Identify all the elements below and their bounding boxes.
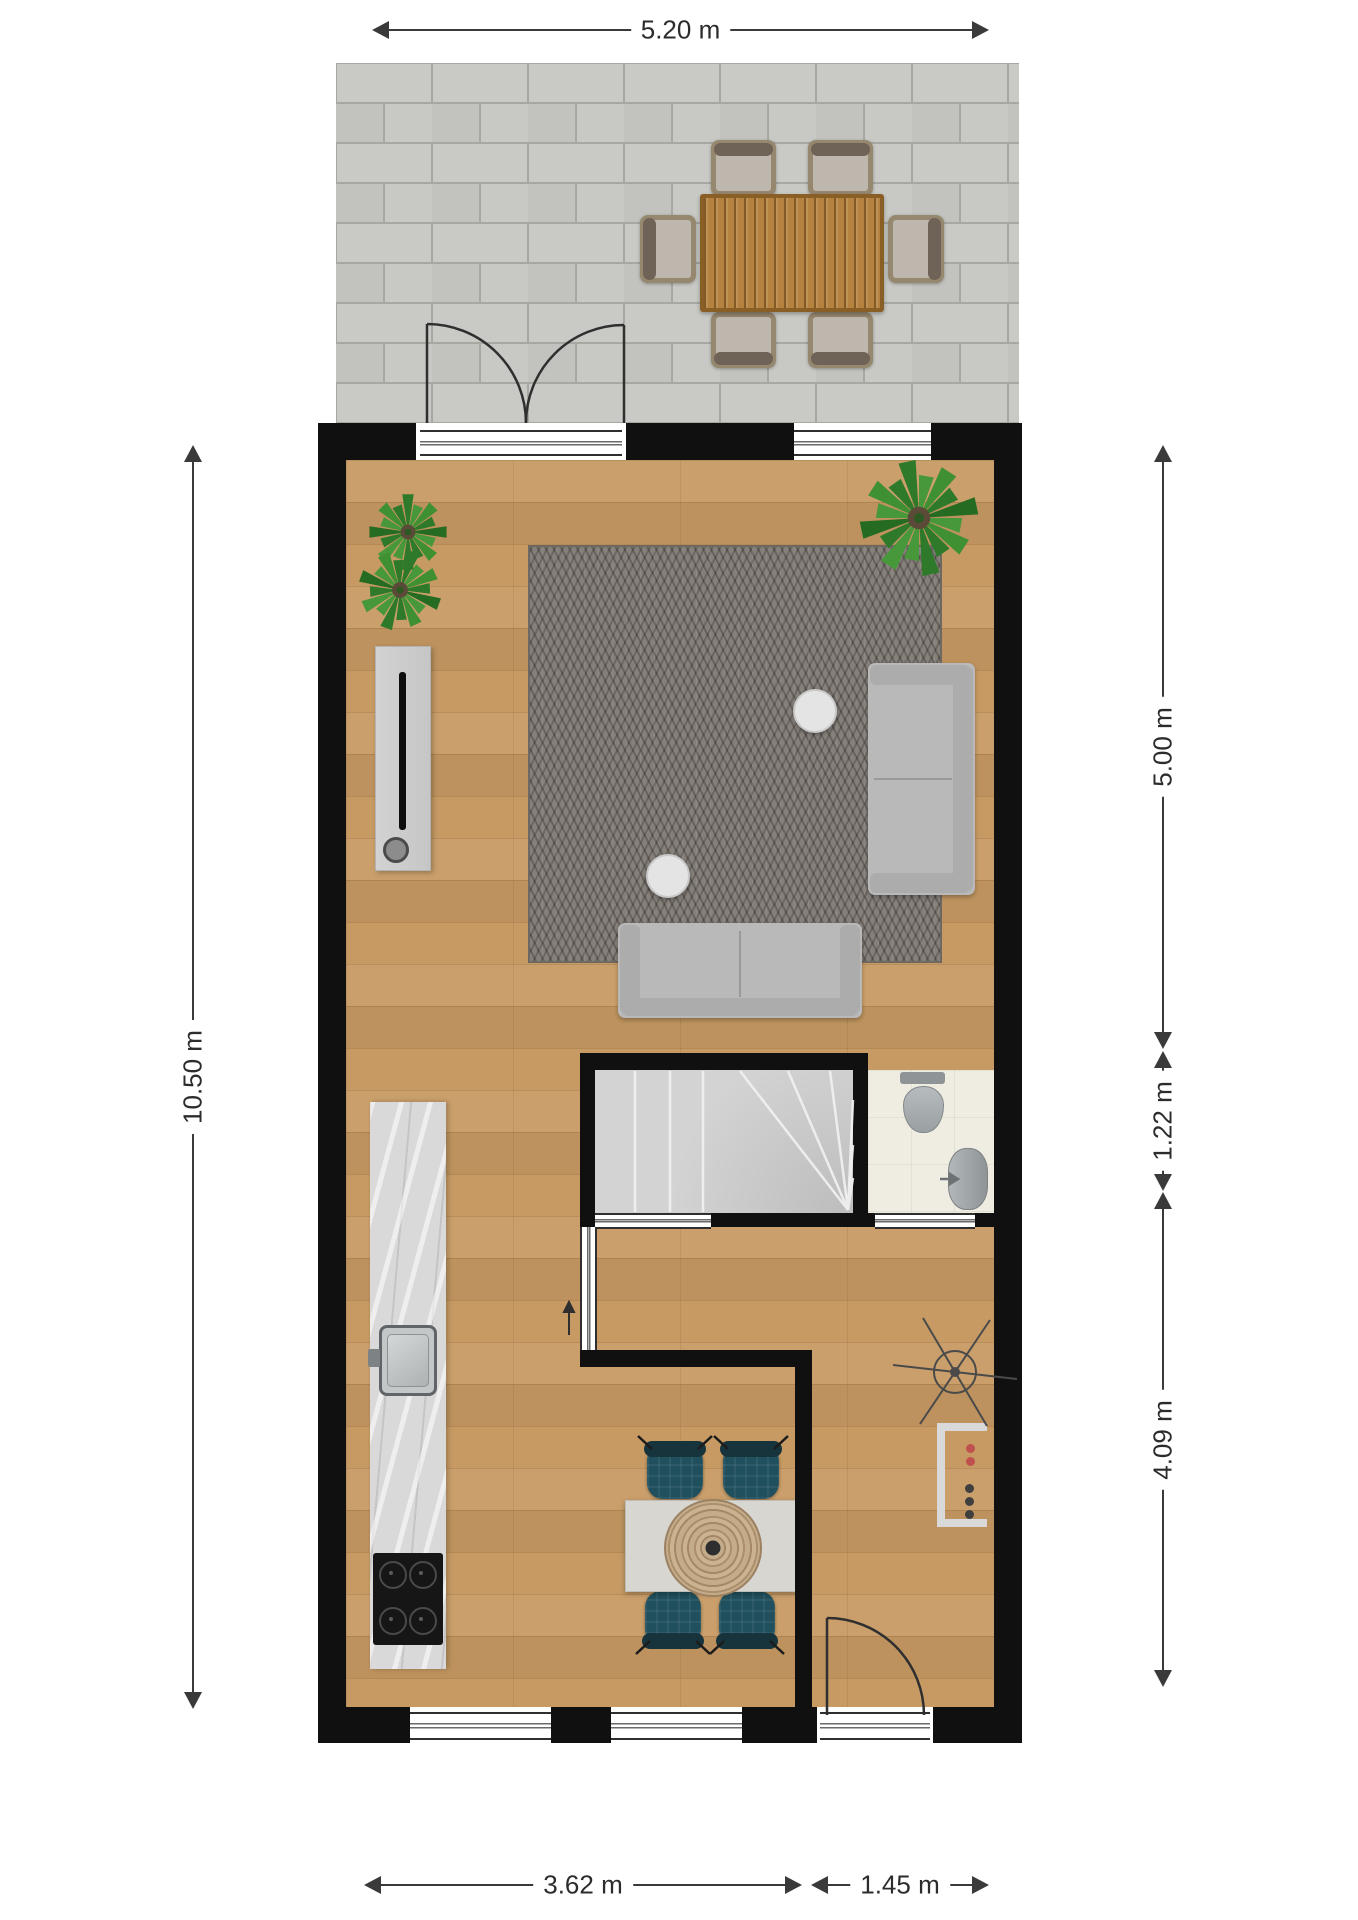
arrowhead bbox=[1154, 1032, 1172, 1049]
patio-chair bbox=[808, 140, 873, 196]
arrowhead bbox=[1154, 1051, 1172, 1068]
arrowhead bbox=[184, 1692, 202, 1709]
sink-bowl bbox=[387, 1334, 429, 1387]
chair-back bbox=[716, 1633, 778, 1649]
dimension-label: 3.62 m bbox=[533, 1869, 633, 1902]
floor-plan: 5.20 m 10.50 m 5.00 m 1.22 m 4.09 m 3.62… bbox=[0, 0, 1358, 1920]
arrowhead bbox=[811, 1876, 828, 1894]
patio-chair-back bbox=[811, 352, 870, 365]
dimension-right-2: 1.22 m bbox=[1162, 1053, 1164, 1189]
round-jute-rug bbox=[664, 1499, 762, 1597]
kitchen-sink-icon bbox=[379, 1325, 437, 1396]
burner-icon bbox=[409, 1607, 437, 1635]
arrowhead bbox=[972, 1876, 989, 1894]
dimension-right-3: 4.09 m bbox=[1162, 1194, 1164, 1685]
wall bbox=[626, 423, 794, 460]
sofa-armrest bbox=[870, 665, 970, 685]
arrowhead bbox=[184, 445, 202, 462]
patio-chair-back bbox=[714, 143, 773, 156]
radiator-dot-dark bbox=[965, 1497, 974, 1506]
wall bbox=[742, 1707, 817, 1743]
patio-chair bbox=[711, 140, 776, 196]
patio-table bbox=[700, 194, 884, 312]
speaker-icon bbox=[383, 837, 409, 863]
window bbox=[611, 1712, 742, 1740]
arrowhead bbox=[1154, 445, 1172, 462]
dimension-label: 10.50 m bbox=[177, 1020, 210, 1134]
chair-back bbox=[642, 1633, 704, 1649]
tv-icon bbox=[399, 672, 406, 830]
french-door-threshold bbox=[420, 430, 622, 456]
dimension-bottom-1: 3.62 m bbox=[366, 1884, 800, 1886]
sofa-seam bbox=[739, 931, 741, 997]
radiator-dot-dark bbox=[965, 1510, 974, 1519]
burner-icon bbox=[379, 1561, 407, 1589]
toilet-icon bbox=[900, 1072, 945, 1084]
wc-door-glyph bbox=[875, 1213, 975, 1229]
radiator-dot-red bbox=[966, 1457, 975, 1466]
arrowhead bbox=[972, 21, 989, 39]
dimension-label: 4.09 m bbox=[1147, 1390, 1180, 1490]
dimension-label: 5.20 m bbox=[631, 14, 731, 47]
dimension-label: 1.45 m bbox=[850, 1869, 950, 1902]
patio-chair-back bbox=[643, 218, 656, 280]
burner-icon bbox=[379, 1607, 407, 1635]
arrowhead bbox=[1154, 1174, 1172, 1191]
wall-wc-left bbox=[853, 1053, 868, 1227]
sofa-bottom bbox=[618, 923, 862, 1018]
window bbox=[794, 430, 931, 456]
window bbox=[410, 1712, 551, 1740]
patio-chair-back bbox=[811, 143, 870, 156]
patio-chair bbox=[711, 312, 776, 368]
chair-back bbox=[720, 1441, 782, 1457]
side-table bbox=[646, 854, 690, 898]
arrowhead bbox=[1154, 1192, 1172, 1209]
tv-cabinet bbox=[375, 646, 431, 871]
stair-entry-glyph bbox=[595, 1213, 711, 1229]
chair-back bbox=[644, 1441, 706, 1457]
patio-chair bbox=[888, 215, 944, 283]
cooktop-icon bbox=[373, 1553, 443, 1645]
dining-chair bbox=[723, 1445, 779, 1499]
wall-stair-bottom bbox=[711, 1213, 868, 1227]
sofa-armrest bbox=[840, 925, 860, 1013]
radiator-dot-red bbox=[966, 1444, 975, 1453]
radiator bbox=[937, 1423, 987, 1527]
faucet-icon bbox=[368, 1349, 380, 1367]
side-table bbox=[793, 689, 837, 733]
wall-stair-top bbox=[580, 1053, 868, 1070]
dimension-top: 5.20 m bbox=[374, 29, 987, 31]
patio-chair-back bbox=[714, 352, 773, 365]
arrowhead bbox=[372, 21, 389, 39]
sofa-back bbox=[953, 667, 973, 891]
dimension-label: 1.22 m bbox=[1147, 1071, 1180, 1171]
dimension-right-1: 5.00 m bbox=[1162, 447, 1164, 1047]
kitchen-door-glyph bbox=[580, 1227, 597, 1350]
sofa-seam bbox=[874, 778, 952, 780]
wall bbox=[933, 1707, 1022, 1743]
wall-stair-left bbox=[580, 1053, 595, 1227]
dimension-bottom-2: 1.45 m bbox=[813, 1884, 987, 1886]
dimension-label: 5.00 m bbox=[1147, 697, 1180, 797]
wall bbox=[551, 1707, 611, 1743]
entrance-door-sill bbox=[820, 1712, 930, 1740]
dining-chair bbox=[647, 1445, 703, 1499]
wall-dining-top bbox=[580, 1350, 812, 1367]
wall bbox=[994, 423, 1022, 1743]
dining-chair bbox=[719, 1591, 775, 1645]
burner-icon bbox=[409, 1561, 437, 1589]
wall bbox=[318, 1707, 410, 1743]
radiator-dot-dark bbox=[965, 1484, 974, 1493]
arrowhead bbox=[364, 1876, 381, 1894]
sofa-back bbox=[622, 998, 858, 1016]
staircase bbox=[595, 1070, 854, 1213]
arrowhead bbox=[785, 1876, 802, 1894]
dining-chair bbox=[645, 1591, 701, 1645]
wall-hall bbox=[795, 1367, 812, 1707]
wall-wc-bottom bbox=[975, 1213, 994, 1227]
wc-sink-icon bbox=[948, 1148, 988, 1210]
patio-chair-back bbox=[928, 218, 941, 280]
table-centerpiece bbox=[706, 1541, 721, 1556]
wall bbox=[318, 423, 346, 1743]
patio-chair bbox=[640, 215, 696, 283]
patio-chair bbox=[808, 312, 873, 368]
wall-wc-bottom bbox=[853, 1213, 875, 1227]
dimension-left: 10.50 m bbox=[192, 447, 194, 1707]
sofa-right bbox=[868, 663, 975, 895]
sofa-armrest bbox=[870, 873, 970, 893]
arrowhead bbox=[1154, 1670, 1172, 1687]
sofa-armrest bbox=[620, 925, 640, 1013]
